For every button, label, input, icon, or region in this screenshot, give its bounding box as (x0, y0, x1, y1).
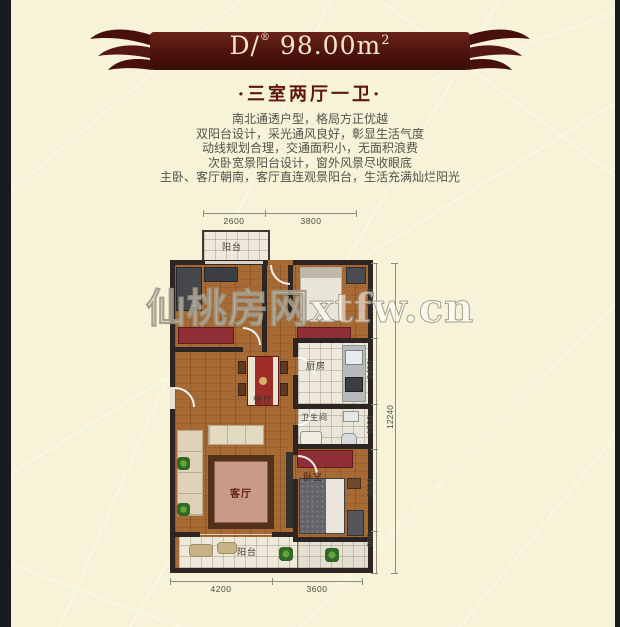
dim-right-2: 2400 (365, 350, 375, 390)
dim-right-4: 3600 (365, 468, 375, 508)
wall (293, 375, 298, 404)
plant-icon (177, 457, 190, 470)
sofa-horizontal (208, 425, 264, 445)
area-value: 98.00m (280, 31, 381, 60)
dimension-tick (391, 573, 398, 574)
wall (293, 537, 368, 542)
poster-page: D/® 98.00m2 ·三室两厅一卫· 南北通透户型，格局方正优越 双阳台设计… (0, 0, 620, 627)
dim-top-left: 2600 (203, 216, 265, 226)
wall (293, 343, 298, 357)
layout-subtitle: ·三室两厅一卫· (0, 80, 620, 106)
area-superscript: 2 (381, 33, 390, 48)
balcony-top-label: 阳台 (222, 240, 242, 253)
dining-chair (280, 383, 288, 396)
dim-top-right: 3800 (265, 216, 357, 226)
dimension-tick (371, 573, 378, 574)
living-label: 客厅 (230, 485, 252, 500)
balcony-slider (200, 534, 272, 535)
dimension-tick (371, 449, 378, 450)
balcony-mat (189, 544, 213, 557)
stove (345, 377, 363, 392)
bathroom-label: 卫生间 (301, 412, 328, 423)
description-line: 南北通透户型，格局方正优越 (0, 112, 620, 127)
sink (345, 350, 363, 365)
unit-label: D/ (230, 31, 260, 60)
bottom-dimension-line (170, 581, 363, 582)
wall (293, 444, 368, 449)
description-line: 主卧、客厅朝南，客厅直连观景阳台，生活充满灿烂阳光 (0, 170, 620, 185)
balcony-window (205, 261, 263, 264)
dim-right-total: 12240 (385, 395, 395, 439)
dimension-tick (391, 263, 398, 264)
bedroom-wardrobe (347, 510, 364, 536)
dining-chair (280, 361, 288, 374)
top-dimension-line (203, 213, 357, 214)
plant-icon (177, 503, 190, 516)
dim-bottom-left: 4200 (170, 584, 272, 594)
bathroom-sink (343, 411, 359, 422)
dining-label: 餐厅 (247, 393, 279, 406)
plant-icon (325, 548, 339, 562)
bathtub (300, 431, 322, 445)
description-line: 次卧宽景阳台设计，窗外风景尽收眼底 (0, 156, 620, 171)
plant-icon (279, 547, 293, 561)
wall (175, 532, 200, 537)
watermark: 仙桃房网xtfw.cn (120, 276, 500, 334)
page-title: D/® 98.00m2 (88, 31, 532, 60)
side-door-arc (175, 387, 195, 407)
bedroom-label: 卧室 (303, 470, 323, 483)
tv-cabinet (286, 452, 293, 528)
dimension-tick (371, 263, 378, 264)
dim-right-5: 900 (365, 520, 375, 560)
registered-mark: ® (260, 32, 271, 43)
dim-bottom-right: 3600 (272, 584, 362, 594)
table-centerpiece (259, 377, 267, 385)
description-block: 南北通透户型，格局方正优越 双阳台设计，采光通风良好，彰显生活气度 动线规划合理… (0, 112, 620, 185)
wall (293, 404, 368, 409)
balcony-bottom-label: 阳台 (237, 545, 257, 558)
wall (175, 347, 243, 352)
dim-right-3: 1800 (365, 405, 375, 445)
description-line: 动线规划合理，交通面积小，无面积浪费 (0, 141, 620, 156)
balcony-top: 阳台 (202, 230, 270, 264)
dining-chair (238, 361, 246, 374)
bed-blanket (326, 479, 344, 533)
kitchen-label: 厨房 (306, 359, 326, 372)
description-line: 双阳台设计，采光通风良好，彰显生活气度 (0, 127, 620, 142)
bedroom-bed (299, 478, 345, 534)
wall (293, 338, 368, 343)
dimension-tick (362, 578, 363, 585)
balcony-mat (217, 542, 237, 554)
dining-chair (238, 383, 246, 396)
dimension-tick (371, 338, 378, 339)
bedroom-nightstand (347, 478, 361, 489)
wall (293, 479, 298, 537)
